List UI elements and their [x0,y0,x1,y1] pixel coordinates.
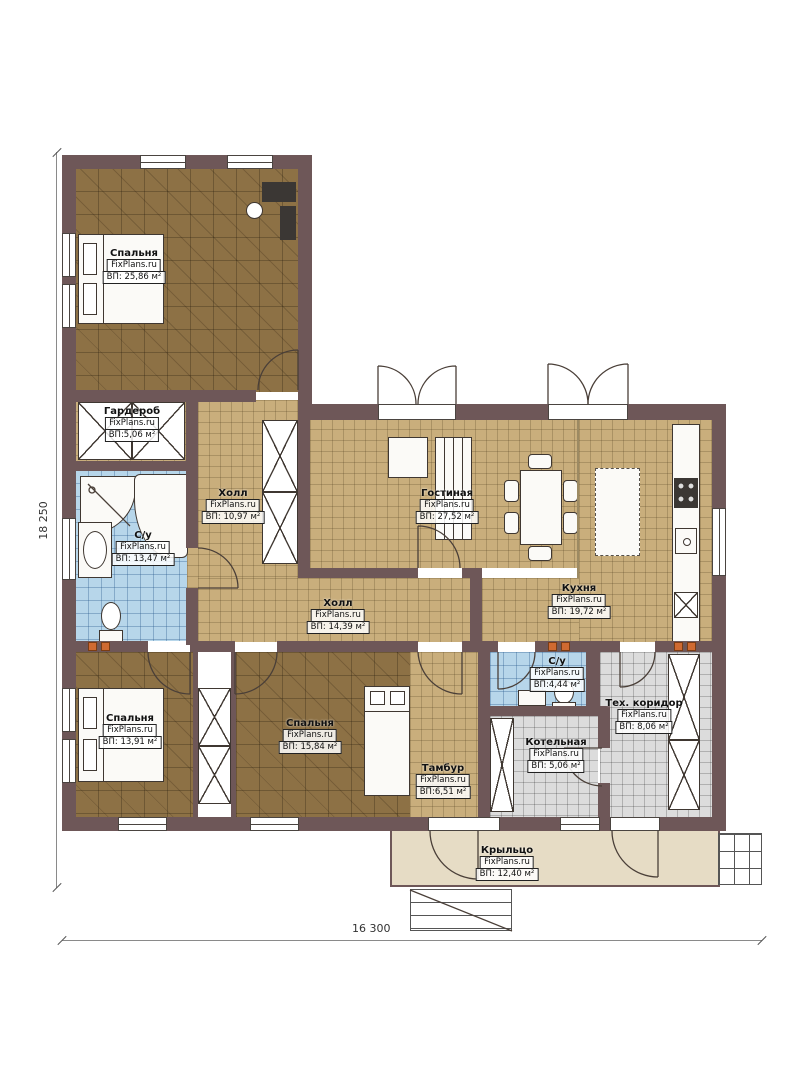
room-area: ВП: 25,86 м² [103,271,166,284]
room-label-porch: Крыльцо FixPlans.ru ВП: 12,40 м² [476,845,539,881]
room-name: Спальня [286,718,334,729]
room-area: ВП: 15,84 м² [279,741,342,754]
room-name: Спальня [106,713,154,724]
room-name: Тамбур [422,763,464,774]
dimension-line-left [56,152,57,888]
room-area: ВП: 12,40 м² [476,868,539,881]
room-name: Холл [323,598,352,609]
dimension-line-bottom [62,940,762,941]
dimension-label-bottom: 16 300 [352,922,391,935]
room-label-living: Гостиная FixPlans.ru ВП: 27,52 м² [416,488,479,524]
room-label-wardrobe: Гардероб FixPlans.ru ВП:5,06 м² [104,406,160,442]
room-name: Тех. коридор [605,698,682,709]
door-arc [430,831,478,879]
door-arc [198,548,238,588]
room-name: Котельная [525,737,586,748]
room-label-kitchen: Кухня FixPlans.ru ВП: 19,72 м² [548,583,611,619]
room-area: ВП: 13,91 м² [99,736,162,749]
shower-door-line [88,484,130,526]
room-name: Спальня [110,248,158,259]
room-area: ВП: 8,06 м² [615,721,672,734]
door-arc [548,364,588,404]
room-name: Гардероб [104,406,160,417]
door-arc [378,366,416,404]
room-label-hall-2: Холл FixPlans.ru ВП: 14,39 м² [307,598,370,634]
dimension-label-left: 18 250 [37,501,50,540]
door-arc [588,364,628,404]
room-area: ВП: 5,06 м² [527,760,584,773]
door-arc [235,652,277,694]
steps-diagonal [410,890,512,931]
door-arc [418,526,460,568]
room-label-bedroom-top: Спальня FixPlans.ru ВП: 25,86 м² [103,248,166,284]
room-name: Кухня [562,583,596,594]
room-area: ВП:4,44 м² [530,679,585,692]
room-area: ВП: 14,39 м² [307,621,370,634]
door-arc [418,652,462,694]
room-label-bathroom-small: С/у FixPlans.ru ВП:4,44 м² [530,656,585,692]
room-label-bedroom-bm: Спальня FixPlans.ru ВП: 15,84 м² [279,718,342,754]
floor-plan-canvas: Спальня FixPlans.ru ВП: 25,86 м² Гардеро… [0,0,792,1080]
room-label-hall-1: Холл FixPlans.ru ВП: 10,97 м² [202,488,265,524]
door-arc [148,652,190,694]
room-name: Крыльцо [481,845,533,856]
room-name: Гостиная [421,488,473,499]
room-area: ВП:5,06 м² [105,429,160,442]
room-label-boiler: Котельная FixPlans.ru ВП: 5,06 м² [525,737,586,773]
door-arc [418,366,456,404]
door-arc [258,350,298,390]
room-area: ВП: 13,47 м² [112,553,175,566]
room-area: ВП: 19,72 м² [548,606,611,619]
door-arc [620,652,655,687]
room-label-tambour: Тамбур FixPlans.ru ВП:6,51 м² [416,763,471,799]
room-name: С/у [134,530,152,541]
door-arc [612,831,658,877]
room-area: ВП: 10,97 м² [202,511,265,524]
room-area: ВП: 27,52 м² [416,511,479,524]
room-area: ВП:6,51 м² [416,786,471,799]
room-label-tech-corridor: Тех. коридор FixPlans.ru ВП: 8,06 м² [605,698,682,734]
room-name: Холл [218,488,247,499]
room-label-bathroom-main: С/у FixPlans.ru ВП: 13,47 м² [112,530,175,566]
room-label-bedroom-bl: Спальня FixPlans.ru ВП: 13,91 м² [99,713,162,749]
room-name: С/у [548,656,566,667]
